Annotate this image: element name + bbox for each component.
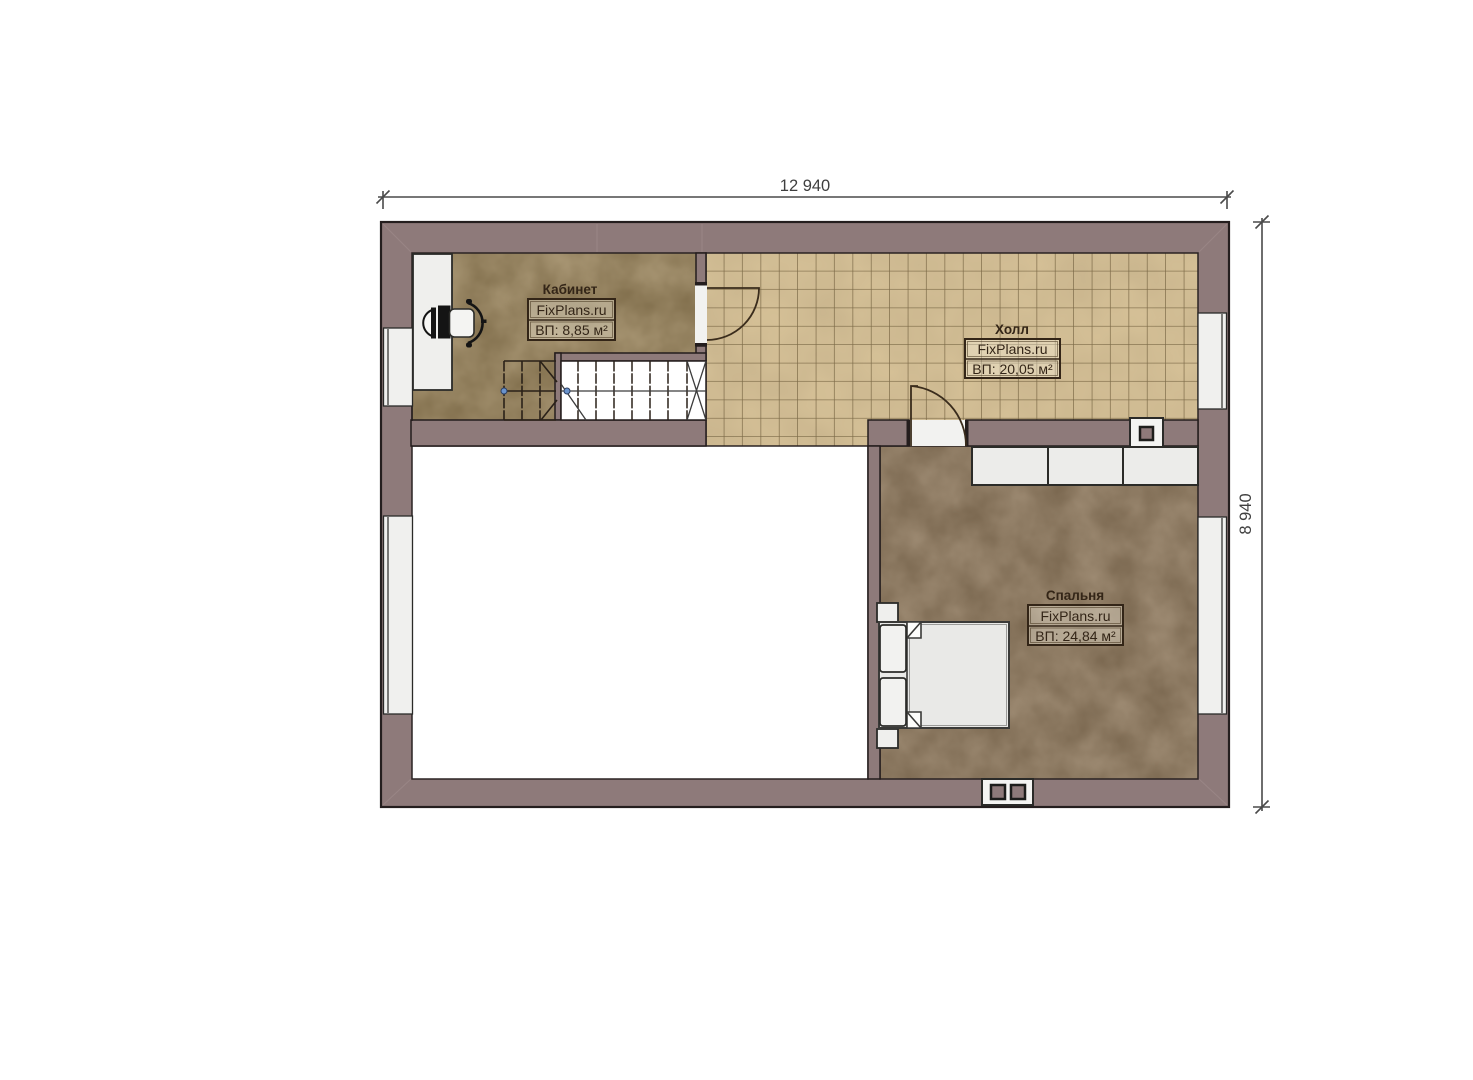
svg-text:FixPlans.ru: FixPlans.ru	[536, 302, 606, 318]
svg-text:12 940: 12 940	[780, 177, 830, 195]
svg-text:8 940: 8 940	[1237, 493, 1255, 534]
svg-text:FixPlans.ru: FixPlans.ru	[1040, 608, 1110, 624]
svg-text:FixPlans.ru: FixPlans.ru	[977, 341, 1047, 357]
svg-text:Холл: Холл	[995, 322, 1029, 337]
svg-text:ВП: 20,05 м²: ВП: 20,05 м²	[972, 361, 1053, 377]
svg-text:ВП: 24,84 м²: ВП: 24,84 м²	[1035, 628, 1116, 644]
svg-text:Спальня: Спальня	[1046, 588, 1104, 603]
svg-text:Кабинет: Кабинет	[543, 282, 598, 297]
svg-text:ВП: 8,85 м²: ВП: 8,85 м²	[535, 322, 608, 338]
